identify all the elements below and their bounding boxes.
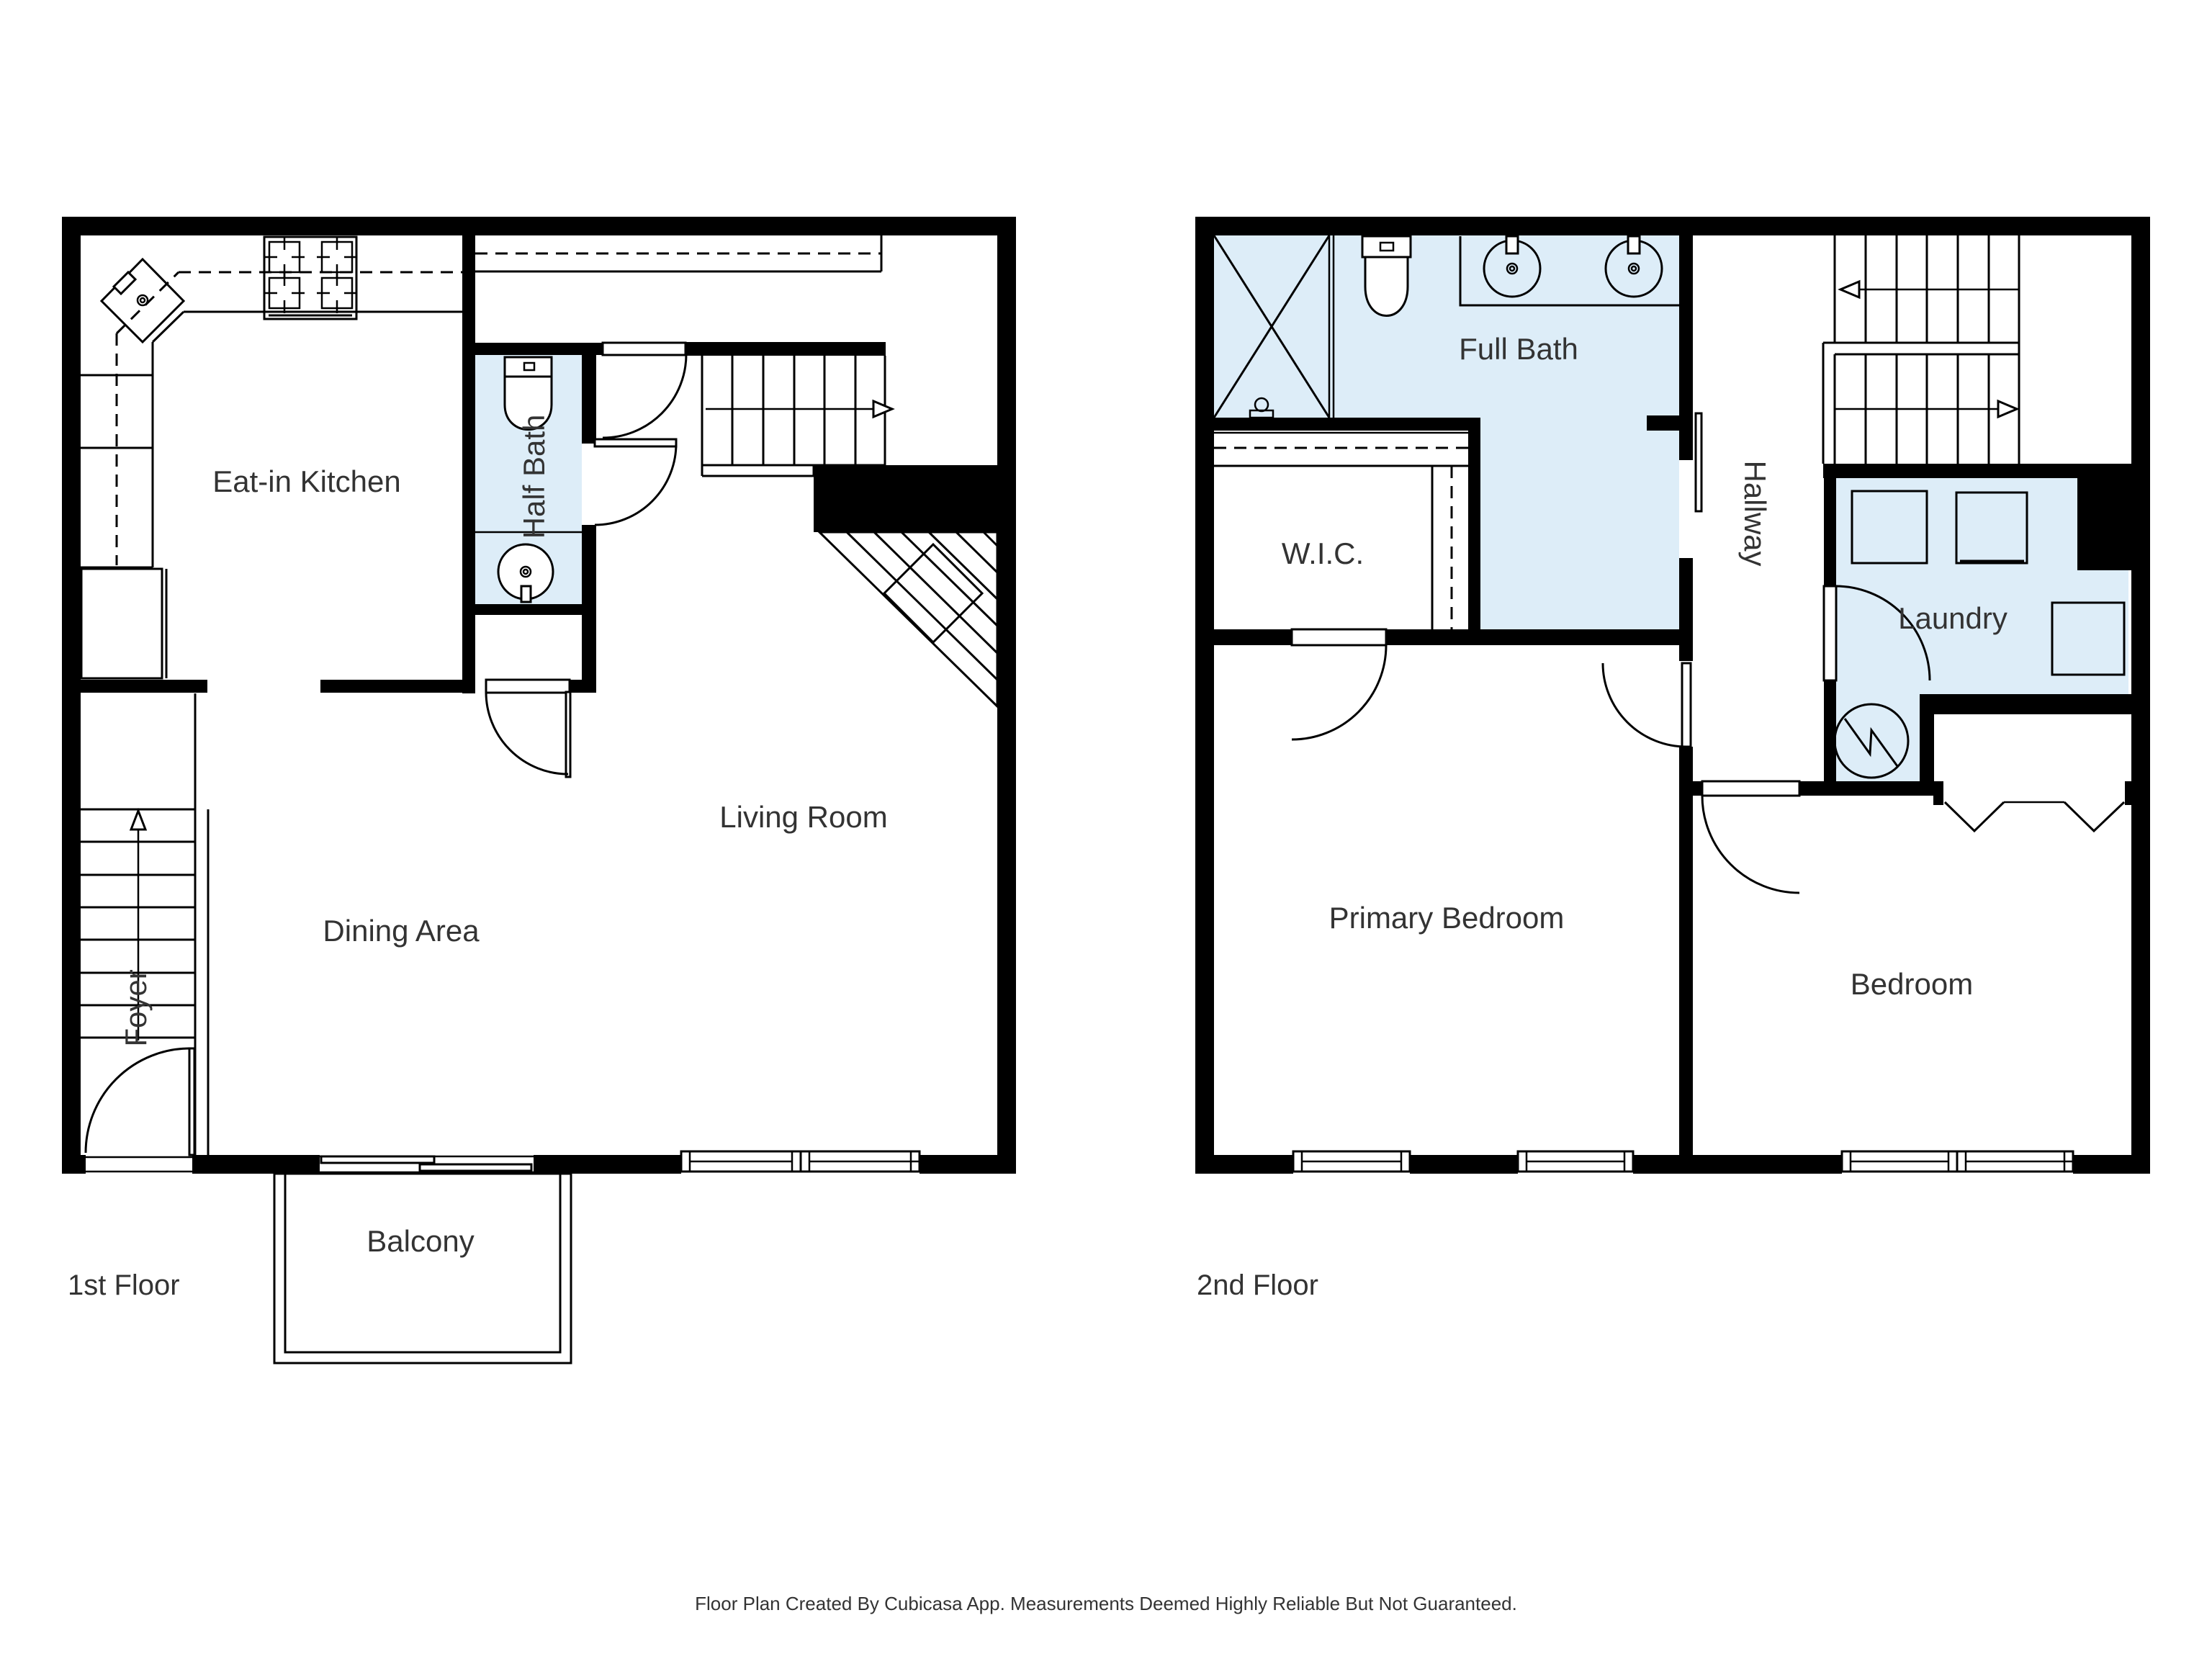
svg-text:Foyer: Foyer (119, 969, 153, 1046)
svg-text:Dining Area: Dining Area (323, 914, 480, 948)
svg-text:Full Bath: Full Bath (1459, 332, 1578, 366)
svg-text:Primary Bedroom: Primary Bedroom (1329, 901, 1565, 935)
svg-text:Balcony: Balcony (367, 1224, 474, 1258)
svg-text:Half Bath: Half Bath (517, 415, 551, 539)
svg-text:Hallway: Hallway (1738, 460, 1772, 566)
svg-text:2nd Floor: 2nd Floor (1197, 1269, 1318, 1301)
svg-text:Floor Plan Created By Cubicasa: Floor Plan Created By Cubicasa App. Meas… (695, 1593, 1517, 1614)
svg-text:1st Floor: 1st Floor (68, 1269, 180, 1301)
svg-text:Living Room: Living Room (719, 800, 887, 834)
svg-text:Bedroom: Bedroom (1851, 967, 1973, 1001)
svg-text:Laundry: Laundry (1898, 601, 2008, 635)
svg-text:Eat-in Kitchen: Eat-in Kitchen (212, 464, 400, 498)
svg-text:W.I.C.: W.I.C. (1282, 536, 1364, 570)
